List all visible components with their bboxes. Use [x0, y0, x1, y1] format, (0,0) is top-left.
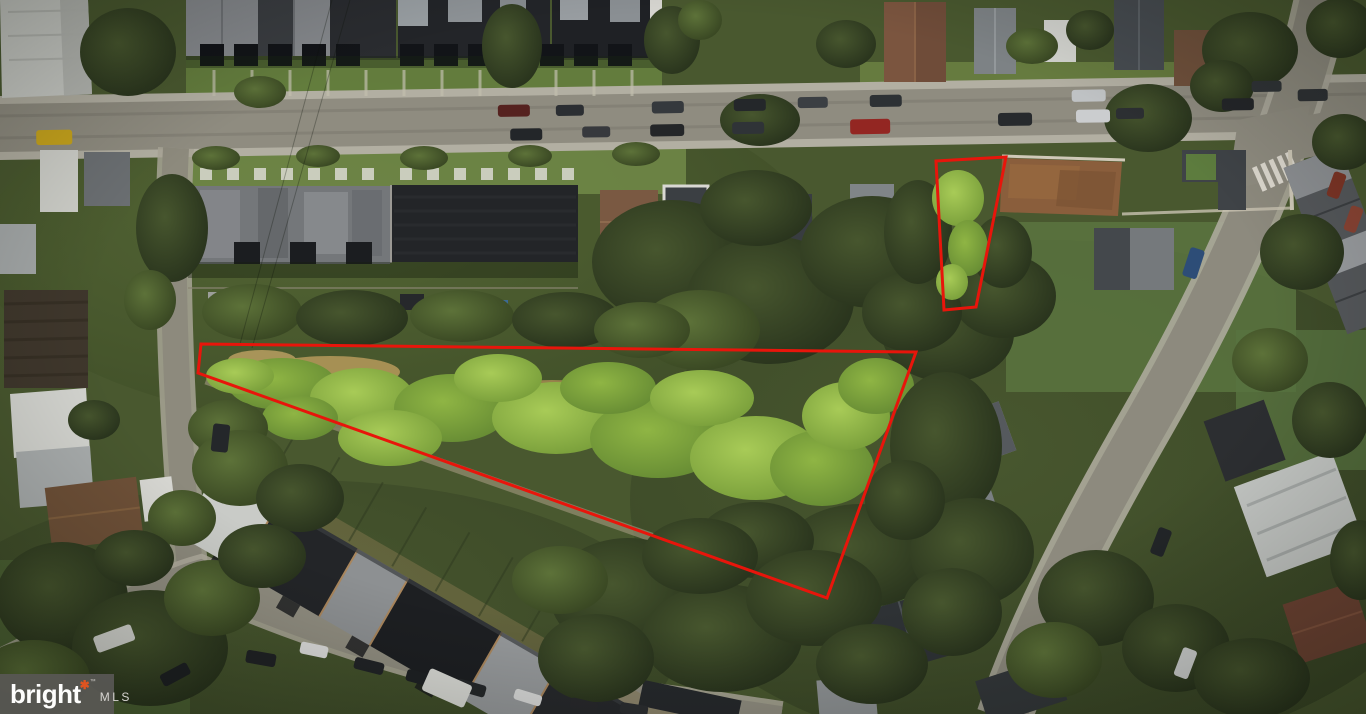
brightmls-logo-text: bright — [10, 681, 81, 707]
brightmls-logo-suffix: MLS — [100, 691, 132, 703]
brightmls-watermark: bright✱™MLS — [0, 674, 114, 714]
vignette — [0, 0, 1366, 714]
trademark-symbol: ™ — [90, 679, 96, 685]
aerial-scene — [0, 0, 1366, 714]
aerial-photo: bright✱™MLS — [0, 0, 1366, 714]
star-icon: ✱ — [80, 679, 90, 691]
